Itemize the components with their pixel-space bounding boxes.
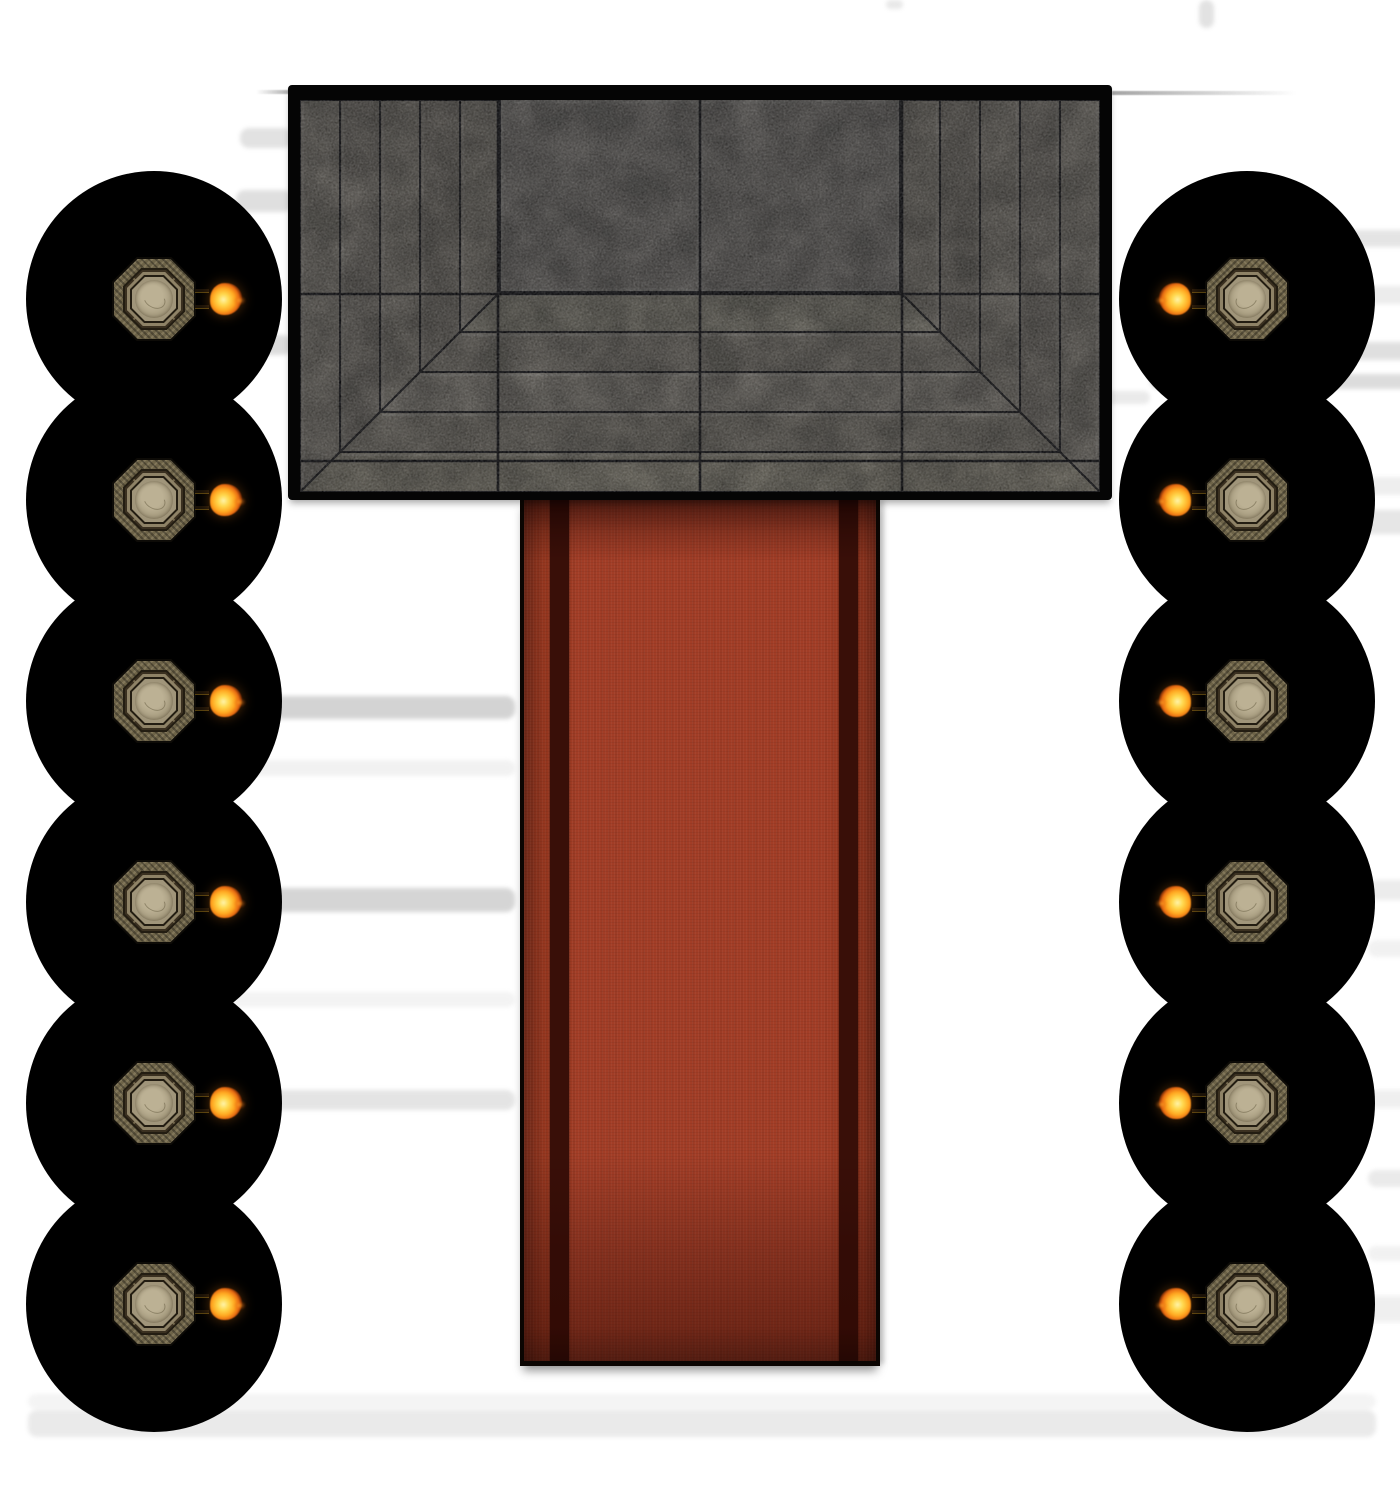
torch-flame-icon [1158, 483, 1192, 517]
torch-flame-icon [209, 282, 243, 316]
pillar-token[interactable] [112, 458, 244, 542]
pillar-marble-core [1228, 481, 1266, 519]
torch-bracket-icon [1192, 889, 1206, 915]
torch-bracket-icon [1192, 688, 1206, 714]
pillar-top [112, 860, 196, 944]
pillar-top [1205, 1061, 1289, 1145]
pillar-token[interactable] [1157, 1061, 1289, 1145]
pillar-marble-core [135, 883, 173, 921]
pillar-marble-core [135, 481, 173, 519]
pillar-marble-core [1228, 280, 1266, 318]
pillar-token[interactable] [1157, 659, 1289, 743]
pillar-top [112, 1061, 196, 1145]
pillar-top [112, 659, 196, 743]
torch-bracket-icon [1192, 1090, 1206, 1116]
torch-bracket-icon [195, 487, 209, 513]
torch-bracket-icon [1192, 286, 1206, 312]
torch-bracket-icon [195, 889, 209, 915]
torch-flame-icon [209, 483, 243, 517]
pillar-top [1205, 659, 1289, 743]
pillar-token[interactable] [112, 860, 244, 944]
torch-bracket-icon [195, 1090, 209, 1116]
pillar-top [1205, 257, 1289, 341]
torch-bracket-icon [195, 1291, 209, 1317]
pillar-token[interactable] [1157, 1262, 1289, 1346]
pillar-marble-core [135, 682, 173, 720]
pillar-top [112, 458, 196, 542]
pillar-marble-core [135, 280, 173, 318]
pillar-token[interactable] [112, 1061, 244, 1145]
pillar-token[interactable] [112, 659, 244, 743]
torch-flame-icon [1158, 684, 1192, 718]
torch-flame-icon [1158, 885, 1192, 919]
pillar-marble-core [1228, 682, 1266, 720]
torch-flame-icon [1158, 1287, 1192, 1321]
pillar-marble-core [1228, 1084, 1266, 1122]
pillar-top [112, 257, 196, 341]
battle-map-canvas[interactable] [0, 0, 1400, 1500]
torch-bracket-icon [195, 688, 209, 714]
pillar-top [1205, 458, 1289, 542]
torch-flame-icon [209, 684, 243, 718]
pillar-marble-core [135, 1084, 173, 1122]
torch-bracket-icon [1192, 1291, 1206, 1317]
pillar-top [1205, 860, 1289, 944]
pillar-token[interactable] [1157, 860, 1289, 944]
pillar-token[interactable] [1157, 458, 1289, 542]
pillar-token[interactable] [1157, 257, 1289, 341]
pillar-marble-core [135, 1285, 173, 1323]
torch-flame-icon [1158, 1086, 1192, 1120]
torch-flame-icon [209, 885, 243, 919]
pillar-top [1205, 1262, 1289, 1346]
torch-flame-icon [209, 1287, 243, 1321]
torch-flame-icon [1158, 282, 1192, 316]
torch-bracket-icon [1192, 487, 1206, 513]
pillar-token[interactable] [112, 257, 244, 341]
pillar-tokens-layer [0, 0, 1400, 1500]
torch-flame-icon [209, 1086, 243, 1120]
torch-bracket-icon [195, 286, 209, 312]
pillar-marble-core [1228, 1285, 1266, 1323]
pillar-token[interactable] [112, 1262, 244, 1346]
pillar-marble-core [1228, 883, 1266, 921]
pillar-top [112, 1262, 196, 1346]
